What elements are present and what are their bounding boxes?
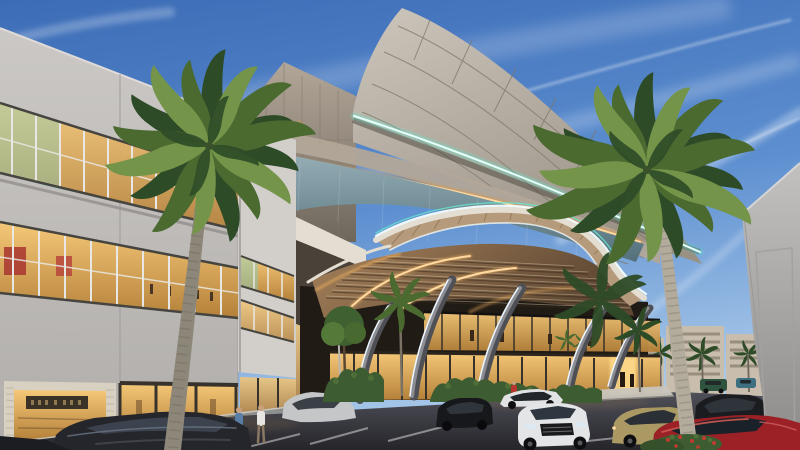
- render-detail: [548, 334, 552, 344]
- render-detail: [740, 380, 751, 384]
- render-detail: [694, 434, 699, 439]
- render-detail: [150, 284, 153, 294]
- render-detail: [473, 380, 479, 386]
- render-detail: [442, 421, 452, 431]
- render-detail: [670, 435, 675, 440]
- render-detail: [576, 422, 586, 427]
- render-detail: [445, 383, 451, 389]
- render-detail: [705, 381, 721, 385]
- render-detail: [333, 378, 339, 384]
- render-detail: [210, 399, 216, 416]
- render-detail: [628, 439, 633, 444]
- render-detail: [470, 330, 474, 341]
- render-detail: [528, 442, 533, 447]
- render-detail: [702, 436, 706, 440]
- render-detail: [708, 438, 712, 442]
- render-detail: [236, 407, 242, 413]
- render-detail: [612, 426, 616, 430]
- render-detail: [351, 372, 357, 378]
- car-teal-hatchback: [736, 378, 756, 388]
- render-detail: [321, 322, 345, 346]
- palm-bud: [205, 142, 213, 150]
- render-detail: [620, 372, 625, 387]
- car-white-sedan: [518, 403, 590, 450]
- render-detail: [78, 400, 81, 405]
- render-detail: [704, 389, 709, 394]
- render-detail: [630, 374, 634, 387]
- render-detail: [257, 411, 265, 426]
- render-detail: [674, 444, 678, 448]
- render-detail: [578, 441, 583, 446]
- render-detail: [54, 400, 57, 405]
- render-detail: [38, 400, 41, 405]
- render-detail: [712, 441, 716, 445]
- render-detail: [63, 400, 66, 405]
- palm-bud: [643, 166, 651, 174]
- render-detail: [540, 423, 574, 436]
- render-detail: [696, 445, 700, 449]
- render-detail: [505, 383, 511, 389]
- render-detail: [666, 438, 670, 442]
- render-detail: [524, 424, 536, 429]
- render-detail: [678, 435, 682, 439]
- render-detail: [210, 292, 213, 301]
- car-black-hatchback: [436, 398, 493, 431]
- scene-canvas: [0, 0, 800, 450]
- render-detail: [690, 439, 694, 443]
- render-detail: [508, 401, 516, 409]
- render-detail: [31, 400, 34, 405]
- rendered-scene: [0, 0, 800, 450]
- render-detail: [368, 375, 374, 381]
- render-detail: [512, 381, 516, 385]
- render-detail: [70, 400, 73, 405]
- render-detail: [45, 400, 48, 405]
- render-detail: [477, 420, 487, 430]
- render-detail: [258, 405, 264, 411]
- render-detail: [344, 322, 366, 344]
- render-detail: [719, 389, 724, 394]
